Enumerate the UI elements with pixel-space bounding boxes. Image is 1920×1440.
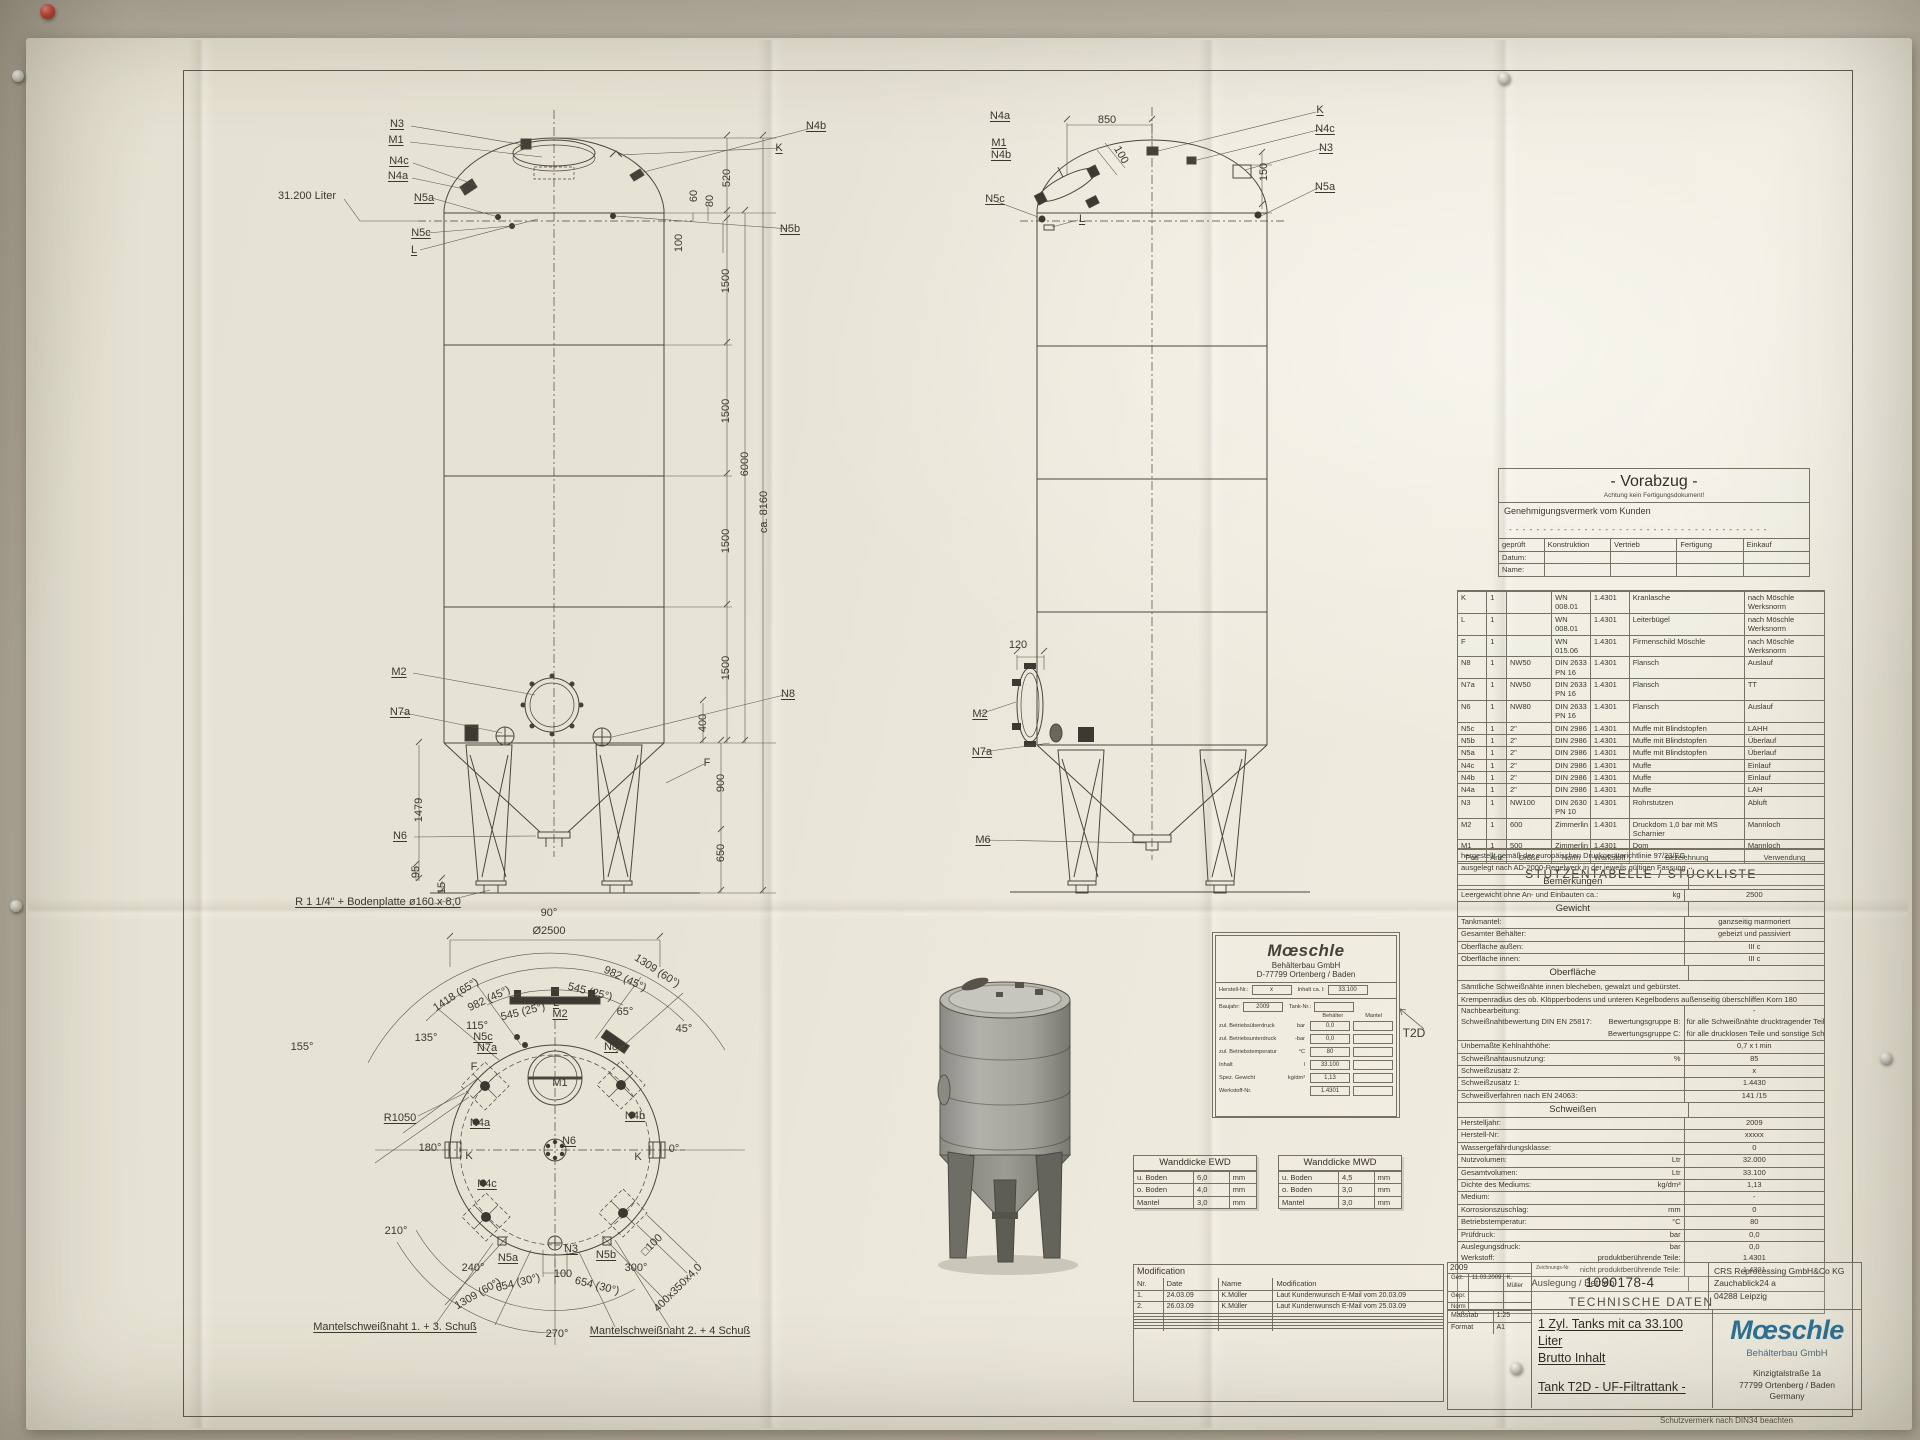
drawing-label: K — [634, 1151, 641, 1163]
drawing-label: N5a — [498, 1252, 518, 1264]
table-cell — [1163, 1326, 1218, 1328]
tech-row-part: Leergewicht ohne An- und Einbauten ca.: — [1461, 890, 1598, 901]
table-cell: 1 — [1486, 797, 1506, 818]
field-value: 1.4301 — [1310, 1086, 1350, 1096]
table-cell: Muffe — [1629, 760, 1744, 771]
tech-row-part: Dichte des Mediums:kg/dm³ — [1458, 1180, 1684, 1191]
tech-row: Bemerkungen — [1458, 874, 1824, 889]
red-push-pin — [40, 4, 55, 19]
field-label: Spez. Gewicht — [1219, 1075, 1288, 1081]
tech-row-part: Tankmantel: — [1461, 917, 1501, 928]
table-cell: 1 — [1486, 723, 1506, 734]
drawing-label: Mantelschweißnaht 1. + 3. Schuß — [313, 1321, 477, 1333]
tech-row-part: Oberfläche außen: — [1461, 942, 1523, 953]
tech-row-part: Schweißnahtbewertung DIN EN 25817:Bewert… — [1458, 1017, 1824, 1028]
drawing-label: M1 — [552, 1077, 567, 1089]
table-cell: 1 — [1486, 657, 1506, 678]
customer-line: Zauchablick24 a — [1714, 1277, 1856, 1289]
drawing-label: 180° — [419, 1142, 442, 1154]
customer-address: CRS Reprocessing GmbH&Co KG Zauchablick2… — [1709, 1263, 1861, 1309]
table-row: N61NW80DIN 2633 PN 161.4301FlanschAuslau… — [1458, 700, 1824, 722]
drawing-title-line: Brutto Inhalt — [1538, 1350, 1706, 1367]
tech-row-part: Bemerkungen — [1458, 875, 1688, 889]
tech-row: Betriebstemperatur:°C80 — [1458, 1216, 1824, 1228]
drawing-label: M2 — [552, 1008, 567, 1020]
table-cell: 1.4301 — [1590, 592, 1629, 613]
table-cell: Auslauf — [1744, 701, 1824, 722]
table-cell: Name: — [1499, 564, 1544, 575]
vorabzug-approval: Genehmigungsvermerk vom Kunden - - - - -… — [1499, 503, 1809, 539]
tech-row-part: 141 /15 — [1684, 1091, 1824, 1102]
manufacturer-address: Kinzigtalstraße 1a 77799 Ortenberg / Bad… — [1713, 1368, 1861, 1404]
table-row: Mantel3,0mm — [1279, 1196, 1401, 1208]
table-cell: N4b — [1458, 772, 1486, 783]
table-cell: DIN 2986 — [1551, 760, 1590, 771]
tech-row-part: Oberfläche außen: — [1458, 942, 1684, 953]
table-cell: Leiterbügel — [1629, 614, 1744, 635]
drawing-label: 0° — [669, 1143, 680, 1155]
table-cell — [1506, 614, 1551, 635]
table-cell: DIN 2630 PN 10 — [1551, 797, 1590, 818]
table-cell: N4a — [1458, 784, 1486, 795]
tech-row-part: 0,0 — [1684, 1242, 1824, 1253]
table-cell: mm — [1229, 1197, 1256, 1208]
table-row: N7a1NW50DIN 2633 PN 161.4301FlanschTT — [1458, 678, 1824, 700]
tank-id-leader — [1396, 1005, 1426, 1031]
tech-row-part: III c — [1684, 954, 1824, 965]
year: 2009 — [1448, 1263, 1531, 1273]
silver-push-pin — [12, 70, 24, 82]
drawn-by-fields: 2009 Gez.11.03.2009K. MüllerGepr.Norm — [1448, 1263, 1532, 1309]
table-cell: N5a — [1458, 747, 1486, 758]
table-row — [1134, 1313, 1443, 1316]
photo-of-drawing: N3M1N4cN4a31.200 LiterN5aN5cLN4bKN5b5206… — [0, 0, 1920, 1440]
field-value-empty — [1353, 1073, 1393, 1083]
vorabzug-box: - Vorabzug - Achtung kein Fertigungsdoku… — [1498, 468, 1810, 577]
tech-row-part: 85 — [1684, 1054, 1824, 1065]
table-cell: 26.03.09 — [1163, 1302, 1218, 1313]
field-unit: -bar — [1295, 1036, 1305, 1042]
tech-row-part: Herstell-Nr: — [1458, 1130, 1684, 1141]
table-cell: 2" — [1506, 760, 1551, 771]
tech-row-part: xxxxx — [1684, 1130, 1824, 1141]
nameplate-box: Mœschle Behälterbau GmbH D-77799 Ortenbe… — [1212, 932, 1400, 1118]
table-cell — [1163, 1314, 1218, 1316]
drawing-label: N4b — [625, 1110, 645, 1122]
nameplate-row: Spez. Gewichtkg/dm³1,13 — [1216, 1071, 1396, 1084]
table-cell — [1743, 564, 1809, 575]
table-cell: DIN 2633 PN 16 — [1551, 679, 1590, 700]
tech-row-part: Dichte des Mediums: — [1461, 1180, 1531, 1191]
tech-row-part — [1688, 1103, 1824, 1117]
nameplate-row: zul. Betriebsüberdruckbar0,0 — [1216, 1019, 1396, 1032]
drawing-label: 210° — [385, 1225, 408, 1237]
drawing-label: N4c — [477, 1178, 497, 1190]
table-cell: u. Boden — [1134, 1172, 1193, 1183]
tech-row-part: Wassergefährdungsklasse: — [1458, 1143, 1684, 1154]
drawing-label: 240° — [462, 1262, 485, 1274]
table-cell: DIN 2986 — [1551, 747, 1590, 758]
table-cell — [1610, 552, 1676, 563]
field-label: Tank-Nr.: — [1289, 1004, 1311, 1010]
nameplate-row: Inhaltl33.100 — [1216, 1058, 1396, 1071]
drawing-label: N5b — [596, 1249, 616, 1261]
table-row: Gez.11.03.2009K. Müller — [1448, 1273, 1531, 1291]
table-cell: WN 008.01 — [1551, 614, 1590, 635]
drawing-number-label: Zeichnungs-Nr. — [1536, 1265, 1704, 1271]
tech-row-part: bar — [1670, 1230, 1681, 1241]
vorabzug-title: - Vorabzug - — [1499, 469, 1809, 492]
tech-row: Schweißen — [1458, 1102, 1824, 1117]
tech-row: Schweißzusatz 1:1.4430 — [1458, 1077, 1824, 1089]
tech-row-part: Schweißnahtausnutzung:% — [1458, 1054, 1684, 1065]
field-label: zul. Betriebsunterdruck — [1219, 1036, 1295, 1042]
table-cell: Flansch — [1629, 679, 1744, 700]
table-cell: 1.4301 — [1590, 772, 1629, 783]
table-row: geprüftKonstruktionVertriebFertigungEink… — [1499, 539, 1809, 550]
tech-row-part: Oberfläche innen: — [1461, 954, 1520, 965]
table-cell: 11.03.2009 — [1468, 1274, 1503, 1291]
table-cell: N5b — [1458, 735, 1486, 746]
tech-row-part: Prüfdruck: — [1461, 1230, 1495, 1241]
drawing-label: 65° — [617, 1006, 634, 1018]
table-cell — [1134, 1314, 1163, 1316]
tech-row: hergestellt gemäß der europäischen Druck… — [1458, 849, 1824, 861]
tech-row-part: Schweißzusatz 1: — [1461, 1078, 1520, 1089]
table-cell — [1468, 1292, 1503, 1302]
table-cell: LAHH — [1744, 723, 1824, 734]
table-row — [1134, 1328, 1443, 1331]
drawing-number: 1090178-4 — [1536, 1275, 1704, 1292]
table-row: L1WN 008.011.4301Leiterbügelnach Möschle… — [1458, 613, 1824, 635]
table-cell: 1.4301 — [1590, 760, 1629, 771]
table-cell: Firmenschild Möschle — [1629, 636, 1744, 657]
field-value: x — [1252, 985, 1292, 995]
tech-row-part: 2009 — [1684, 1118, 1824, 1129]
table-cell — [1676, 552, 1742, 563]
table-row: K1WN 008.011.4301Kranlaschenach Möschle … — [1458, 591, 1824, 613]
table-cell — [1610, 564, 1676, 575]
table-row: 1.24.03.09K.MüllerLaut Kundenwunsch E-Ma… — [1134, 1290, 1443, 1302]
title-block: 2009 Gez.11.03.2009K. MüllerGepr.Norm Ze… — [1447, 1262, 1862, 1410]
table-row: u. Boden6,0mm — [1134, 1171, 1256, 1183]
tech-row: Dichte des Mediums:kg/dm³1,13 — [1458, 1179, 1824, 1191]
tech-row-part: III c — [1684, 942, 1824, 953]
moeschle-logo: Mœschle — [1713, 1314, 1861, 1348]
table-cell: Mantel — [1279, 1197, 1338, 1208]
tech-row-part: x — [1684, 1066, 1824, 1077]
table-cell: N4c — [1458, 760, 1486, 771]
silver-push-pin — [1510, 1362, 1522, 1374]
tech-row-part: Schweißzusatz 1: — [1458, 1078, 1684, 1089]
scale-format-fields: Maßstab1:25FormatA1 — [1448, 1310, 1532, 1408]
table-cell — [1272, 1314, 1443, 1316]
field-value: 33.100 — [1328, 985, 1368, 995]
table-cell: N3 — [1458, 797, 1486, 818]
table-cell: o. Boden — [1279, 1184, 1338, 1195]
table-row: Name: — [1499, 563, 1809, 575]
table-cell — [1163, 1323, 1218, 1325]
tech-row-part: Schweißen — [1458, 1103, 1688, 1117]
nameplate-brand: Mœschle — [1216, 936, 1396, 961]
tech-row-part: Bewertungsgruppe C: — [1458, 1029, 1684, 1040]
tech-row-part: - — [1684, 1006, 1824, 1017]
silver-push-pin — [1498, 72, 1510, 84]
table-cell — [1544, 564, 1610, 575]
table-cell: NW80 — [1506, 701, 1551, 722]
table-row — [1134, 1316, 1443, 1319]
modification-title: Modification — [1134, 1265, 1443, 1278]
tech-row-part: Ltr — [1672, 1155, 1681, 1166]
tech-row-part: Korrosionszuschlag:mm — [1458, 1205, 1684, 1216]
field-value: 2009 — [1243, 1002, 1283, 1012]
table-cell — [1272, 1317, 1443, 1319]
tech-row-part: Schweißnahtbewertung DIN EN 25817: — [1461, 1017, 1592, 1028]
table-cell — [1134, 1329, 1163, 1331]
tech-row-part: für alle drucklosen Teile und sonstige S… — [1684, 1029, 1824, 1040]
table-cell: 600 — [1506, 819, 1551, 840]
field-value-empty — [1353, 1021, 1393, 1031]
drawing-label: N3 — [564, 1243, 578, 1255]
manufacturer-cell: Mœschle Behälterbau GmbH Kinzigtalstraße… — [1713, 1310, 1861, 1408]
field-unit: l — [1304, 1062, 1305, 1068]
tech-row-part: Schweißzusatz 2: — [1461, 1066, 1520, 1077]
table-row: Nr.DateNameModification — [1134, 1278, 1443, 1289]
table-cell: mm — [1229, 1184, 1256, 1195]
field-unit: bar — [1297, 1023, 1305, 1029]
tech-row: ausgelegt nach AD-2000-Regelwerk in der … — [1458, 861, 1824, 873]
table-row — [1134, 1319, 1443, 1322]
table-row: N5a12"DIN 29861.4301Muffe mit Blindstopf… — [1458, 746, 1824, 758]
drawing-label: 100 — [554, 1268, 572, 1280]
table-cell: DIN 2633 PN 16 — [1551, 701, 1590, 722]
table-cell: Mantel — [1134, 1197, 1193, 1208]
table-cell — [1218, 1317, 1273, 1319]
table-cell: Überlauf — [1744, 735, 1824, 746]
drawing-label: R1050 — [384, 1112, 416, 1124]
table-cell: Nr. — [1134, 1278, 1163, 1289]
field-unit: kg/dm³ — [1288, 1075, 1305, 1081]
table-row: F1WN 015.061.4301Firmenschild Möschlenac… — [1458, 635, 1824, 657]
table-row: N5c12"DIN 29861.4301Muffe mit Blindstopf… — [1458, 722, 1824, 734]
table-cell: Laut Kundenwunsch E-Mail vom 25.03.09 — [1272, 1302, 1443, 1313]
table-row: 2.26.03.09K.MüllerLaut Kundenwunsch E-Ma… — [1134, 1301, 1443, 1313]
table-row: M21600Zimmerlin1.4301Druckdom 1,0 bar mi… — [1458, 818, 1824, 840]
tech-row: Schweißnahtbewertung DIN EN 25817:Bewert… — [1458, 1017, 1824, 1040]
drawing-label: 155° — [291, 1041, 314, 1053]
tech-row-part: gebeizt und passiviert — [1684, 929, 1824, 940]
table-cell — [1134, 1326, 1163, 1328]
field-value-empty — [1353, 1034, 1393, 1044]
table-cell: 1.4301 — [1590, 657, 1629, 678]
tech-row-part: Auslegungsdruck: — [1461, 1242, 1521, 1253]
silver-push-pin — [10, 900, 22, 912]
table-cell: Einlauf — [1744, 772, 1824, 783]
table-cell — [1163, 1320, 1218, 1322]
tech-row-part: Schweißzusatz 2: — [1458, 1066, 1684, 1077]
table-cell: WN 008.01 — [1551, 592, 1590, 613]
drawing-label: K — [465, 1150, 472, 1162]
tech-row-part: Nutzvolumen:Ltr — [1458, 1155, 1684, 1166]
table-cell — [1503, 1292, 1531, 1302]
table-cell: Einlauf — [1744, 760, 1824, 771]
table-cell: N8 — [1458, 657, 1486, 678]
tech-row-part: 0,0 — [1684, 1230, 1824, 1241]
table-cell: K — [1458, 592, 1486, 613]
table-cell: F — [1458, 636, 1486, 657]
table-cell — [1218, 1320, 1273, 1322]
tech-row-part: % — [1674, 1054, 1681, 1065]
tech-row-part: Oberfläche innen: — [1458, 954, 1684, 965]
tech-row-part: 1,13 — [1684, 1180, 1824, 1191]
field-label: Inhalt ca. l: — [1298, 987, 1325, 993]
table-cell — [1506, 592, 1551, 613]
table-cell: Druckdom 1,0 bar mit MS Scharnier — [1629, 819, 1744, 840]
address-line: Germany — [1713, 1391, 1861, 1403]
drawing-subtitle: Tank T2D - UF-Filtrattank - — [1538, 1379, 1706, 1396]
tech-row-part: für alle Schweißnähte drucktragender Tei… — [1684, 1017, 1824, 1028]
table-cell: DIN 2986 — [1551, 772, 1590, 783]
table-cell: DIN 2986 — [1551, 723, 1590, 734]
table-cell: 1.4301 — [1590, 636, 1629, 657]
tech-row: Gewicht — [1458, 901, 1824, 916]
drawing-label: 654 (30°) — [574, 1275, 621, 1298]
tech-row-part: 80 — [1684, 1217, 1824, 1228]
nameplate-subtitle: Behälterbau GmbH — [1216, 961, 1396, 970]
drawing-label: N4a — [470, 1117, 490, 1129]
tech-row: Auslegungsdruck:bar0,0 — [1458, 1241, 1824, 1253]
table-cell: 1 — [1486, 735, 1506, 746]
table-cell: Gez. — [1448, 1274, 1468, 1291]
table-cell: 3,0 — [1338, 1184, 1374, 1195]
table-row: N4c12"DIN 29861.4301MuffeEinlauf — [1458, 759, 1824, 771]
table-cell: Format — [1448, 1323, 1493, 1334]
table-cell: 1 — [1486, 701, 1506, 722]
table-cell — [1272, 1320, 1443, 1322]
table-row: N81NW50DIN 2633 PN 161.4301FlanschAuslau… — [1458, 656, 1824, 678]
table-cell: nach Möschle Werksnorm — [1744, 592, 1824, 613]
tech-row-part: Oberfläche — [1458, 966, 1688, 980]
tech-row-part: Betriebstemperatur:°C — [1458, 1217, 1684, 1228]
tech-row-part: Gesamtvolumen:Ltr — [1458, 1168, 1684, 1179]
wall-thickness-table-mwd: Wanddicke MWD u. Boden4,5mmo. Boden3,0mm… — [1278, 1155, 1402, 1209]
tech-row-part — [1688, 966, 1824, 980]
tech-row-part: Medium: — [1461, 1192, 1490, 1203]
table-cell: mm — [1229, 1172, 1256, 1183]
protection-note: Schutzvermerk nach DIN34 beachten — [1660, 1416, 1793, 1425]
tech-row-part: Tankmantel: — [1458, 917, 1684, 928]
tech-row-part: Schweißverfahren nach EN 24063: — [1458, 1091, 1684, 1102]
parts-list-table: K1WN 008.011.4301Kranlaschenach Möschle … — [1457, 590, 1825, 886]
customer-line: 04288 Leipzig — [1714, 1290, 1856, 1302]
field-label: zul. Betriebsüberdruck — [1219, 1023, 1297, 1029]
drawing-label: 400x350x4,0 — [651, 1261, 704, 1314]
field-label: Werkstoff-Nr. — [1219, 1088, 1305, 1094]
table-cell: Abluft — [1744, 797, 1824, 818]
tech-row-part: 33.100 — [1684, 1168, 1824, 1179]
table-cell: 1.4301 — [1590, 735, 1629, 746]
table-cell: Flansch — [1629, 657, 1744, 678]
address-line: Kinzigtalstraße 1a — [1713, 1368, 1861, 1380]
tech-row-part: Schweißnahtausnutzung: — [1461, 1054, 1545, 1065]
tech-row-part: Gesamter Behälter: — [1458, 929, 1684, 940]
table-cell: K.Müller — [1218, 1302, 1273, 1313]
table-cell: 4,5 — [1338, 1172, 1374, 1183]
table-cell: Auslauf — [1744, 657, 1824, 678]
tech-row-part: Korrosionszuschlag: — [1461, 1205, 1529, 1216]
table-cell: 1.4301 — [1590, 784, 1629, 795]
drawing-label: 300° — [625, 1262, 648, 1274]
table-cell: 1.4301 — [1590, 701, 1629, 722]
vorabzug-subtitle: Achtung kein Fertigungsdokument! — [1499, 492, 1809, 503]
table-cell: 1 — [1486, 679, 1506, 700]
tech-row-part: ganzseitig marmoriert — [1684, 917, 1824, 928]
tech-row-part: Gesamter Behälter: — [1461, 929, 1526, 940]
table-cell: NW100 — [1506, 797, 1551, 818]
tech-row: Herstelljahr:2009 — [1458, 1117, 1824, 1129]
tech-row-part: Nachbearbeitung: — [1461, 1006, 1520, 1017]
table-cell: Modification — [1272, 1278, 1443, 1289]
tech-row: Nutzvolumen:Ltr32.000 — [1458, 1154, 1824, 1166]
table-cell — [1544, 552, 1610, 563]
table-cell — [1272, 1329, 1443, 1331]
tech-row-part: °C — [1672, 1217, 1680, 1228]
drawing-label: N6 — [562, 1135, 576, 1147]
tech-row-part: Ltr — [1672, 1168, 1681, 1179]
table-row — [1134, 1322, 1443, 1325]
table-cell: 1 — [1486, 784, 1506, 795]
nameplate-city: D-77799 Ortenberg / Baden — [1216, 970, 1396, 983]
table-cell: Mannloch — [1744, 819, 1824, 840]
table-cell: geprüft — [1499, 539, 1544, 550]
tech-row: Gesamtvolumen:Ltr33.100 — [1458, 1167, 1824, 1179]
table-cell: 1 — [1486, 772, 1506, 783]
tech-row-part: kg/dm³ — [1658, 1180, 1681, 1191]
tech-row-part: Leergewicht ohne An- und Einbauten ca.:k… — [1458, 890, 1684, 901]
customer-line: CRS Reprocessing GmbH&Co KG — [1714, 1265, 1856, 1277]
tech-row-part: - — [1684, 1192, 1824, 1203]
field-value: 1,13 — [1310, 1073, 1350, 1083]
table-cell — [1506, 636, 1551, 657]
tech-row-part: Nutzvolumen: — [1461, 1155, 1507, 1166]
table-cell: Konstruktion — [1544, 539, 1610, 550]
field-label: Herstell-Nr.: — [1219, 987, 1249, 993]
table-cell: Laut Kundenwunsch E-Mail vom 20.03.09 — [1272, 1291, 1443, 1302]
nameplate-row: Herstell-Nr.: x Inhalt ca. l: 33.100 — [1216, 983, 1396, 996]
table-cell: N5c — [1458, 723, 1486, 734]
table-cell: 2" — [1506, 735, 1551, 746]
tech-row-part: Herstell-Nr: — [1461, 1130, 1499, 1141]
tech-row-part: Schweißverfahren nach EN 24063: — [1461, 1091, 1577, 1102]
table-cell: mm — [1374, 1172, 1401, 1183]
table-cell: 1.4301 — [1590, 819, 1629, 840]
drawing-label: □100 — [639, 1232, 665, 1258]
drawing-label: 1309 (60°) — [453, 1276, 504, 1312]
table-cell: 1.4301 — [1590, 679, 1629, 700]
table-cell: N6 — [1458, 701, 1486, 722]
table-cell: 24.03.09 — [1163, 1291, 1218, 1302]
tech-row: Prüfdruck:bar0,0 — [1458, 1229, 1824, 1241]
tech-row-part: Medium: — [1458, 1192, 1684, 1203]
tech-row: Sämtliche Schweißnähte innen blecheben, … — [1458, 980, 1824, 992]
table-cell: mm — [1374, 1197, 1401, 1208]
tech-row-part: Nachbearbeitung: — [1458, 1006, 1684, 1017]
drawing-label: 545 (25°) — [500, 1001, 547, 1024]
table-cell: 2" — [1506, 772, 1551, 783]
tech-row-part: Herstelljahr: — [1461, 1118, 1501, 1129]
table-cell — [1218, 1323, 1273, 1325]
table-row: o. Boden4,0mm — [1134, 1183, 1256, 1195]
